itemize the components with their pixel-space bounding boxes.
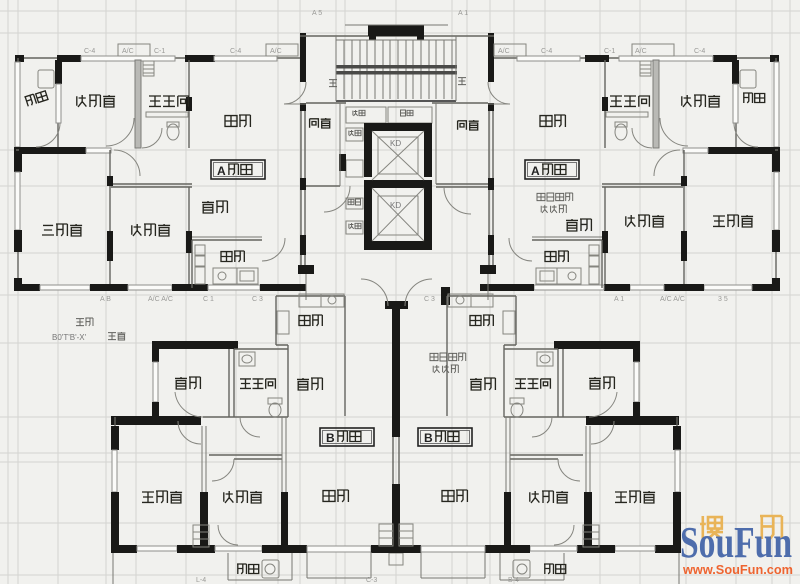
svg-text:A: A [531,164,542,178]
svg-text:A/C: A/C [122,48,134,55]
svg-text:C-3: C-3 [366,577,377,584]
svg-text:A/C: A/C [498,48,510,55]
svg-text:A 1: A 1 [458,10,468,17]
svg-text:C-4: C-4 [230,48,241,55]
svg-text:C 3: C 3 [424,296,435,303]
svg-text:A/C A/C: A/C A/C [660,296,685,303]
svg-text:3 5: 3 5 [718,296,728,303]
svg-text:C-4: C-4 [694,48,705,55]
svg-text:B: B [424,431,435,445]
svg-text:C 1: C 1 [203,296,214,303]
svg-text:C-1: C-1 [604,48,615,55]
svg-text:C-4: C-4 [84,48,95,55]
svg-text:SouFun: SouFun [680,518,792,567]
svg-text:B-4: B-4 [508,577,519,584]
svg-text:A/C A/C: A/C A/C [148,296,173,303]
svg-text:KD: KD [390,139,401,148]
svg-text:A/C: A/C [635,48,647,55]
svg-text:C 3: C 3 [252,296,263,303]
svg-text:KD: KD [390,201,401,210]
svg-text:A 5: A 5 [312,10,322,17]
svg-text:B: B [326,431,337,445]
svg-text:B0'T'B'-X': B0'T'B'-X' [52,333,87,342]
svg-text:C-4: C-4 [541,48,552,55]
svg-text:L-4: L-4 [196,577,206,584]
svg-text:C-1: C-1 [154,48,165,55]
svg-text:A 1: A 1 [614,296,624,303]
svg-text:www.SouFun.com: www.SouFun.com [682,562,793,577]
svg-text:A/C: A/C [270,48,282,55]
svg-text:A B: A B [100,296,111,303]
svg-text:A: A [217,164,228,178]
